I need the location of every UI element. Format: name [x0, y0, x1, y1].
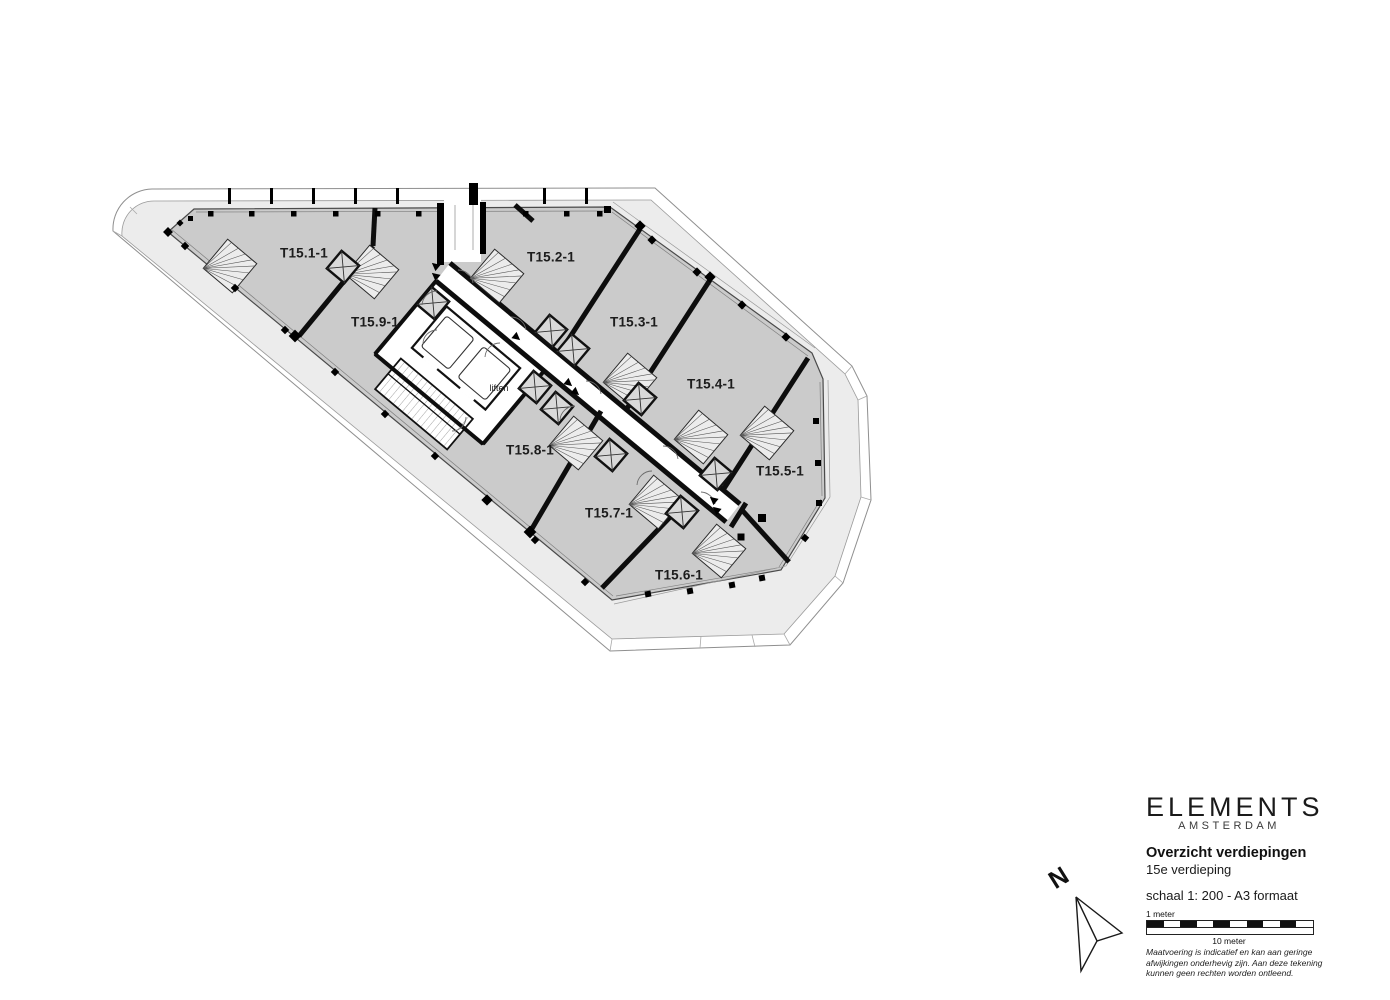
scalebar: [1146, 920, 1314, 935]
brand-logo: ELEMENTS: [1146, 792, 1324, 823]
unit-label: T15.5-1: [756, 464, 804, 479]
scalebar-segment: [1197, 921, 1214, 927]
scalebar-lower-row: [1147, 928, 1313, 934]
scalebar-label-bottom: 10 meter: [1146, 936, 1312, 946]
unit-label: T15.4-1: [687, 377, 735, 392]
scalebar-label-top: 1 meter: [1146, 909, 1175, 919]
sheet-subtitle: 15e verdieping: [1146, 862, 1231, 877]
scalebar-segment: [1180, 921, 1197, 927]
scalebar-segment: [1263, 921, 1280, 927]
disclaimer-text: Maatvoering is indicatief en kan aan ger…: [1146, 947, 1322, 979]
scalebar-segment: [1230, 921, 1247, 927]
unit-label: T15.3-1: [610, 315, 658, 330]
unit-label: T15.6-1: [655, 568, 703, 583]
scalebar-segment: [1147, 921, 1164, 927]
disclaimer-line: Maatvoering is indicatief en kan aan ger…: [1146, 947, 1322, 958]
disclaimer-line: kunnen geen rechten worden ontleend.: [1146, 968, 1322, 979]
unit-label: T15.1-1: [280, 246, 328, 261]
unit-label: T15.2-1: [527, 250, 575, 265]
disclaimer-line: afwijkingen onderhevig zijn. Aan deze te…: [1146, 958, 1322, 969]
drawing-sheet: T15.1-1T15.2-1T15.3-1T15.4-1T15.5-1T15.6…: [0, 0, 1390, 1000]
unit-label: T15.9-1: [351, 315, 399, 330]
unit-label: T15.8-1: [506, 443, 554, 458]
scalebar-segment: [1296, 921, 1313, 927]
core-label: liften: [489, 383, 508, 393]
entrance-notch: [444, 198, 481, 262]
scalebar-segment: [1164, 921, 1181, 927]
scalebar-segment: [1213, 921, 1230, 927]
unit-label: T15.7-1: [585, 506, 633, 521]
scale-note: schaal 1: 200 - A3 formaat: [1146, 888, 1298, 903]
brand-sublogo: AMSTERDAM: [1146, 820, 1312, 832]
scalebar-segments: [1147, 921, 1313, 928]
scalebar-segment: [1280, 921, 1297, 927]
sheet-title: Overzicht verdiepingen: [1146, 845, 1306, 861]
scalebar-segment: [1247, 921, 1264, 927]
north-arrow-icon: [1076, 897, 1122, 971]
